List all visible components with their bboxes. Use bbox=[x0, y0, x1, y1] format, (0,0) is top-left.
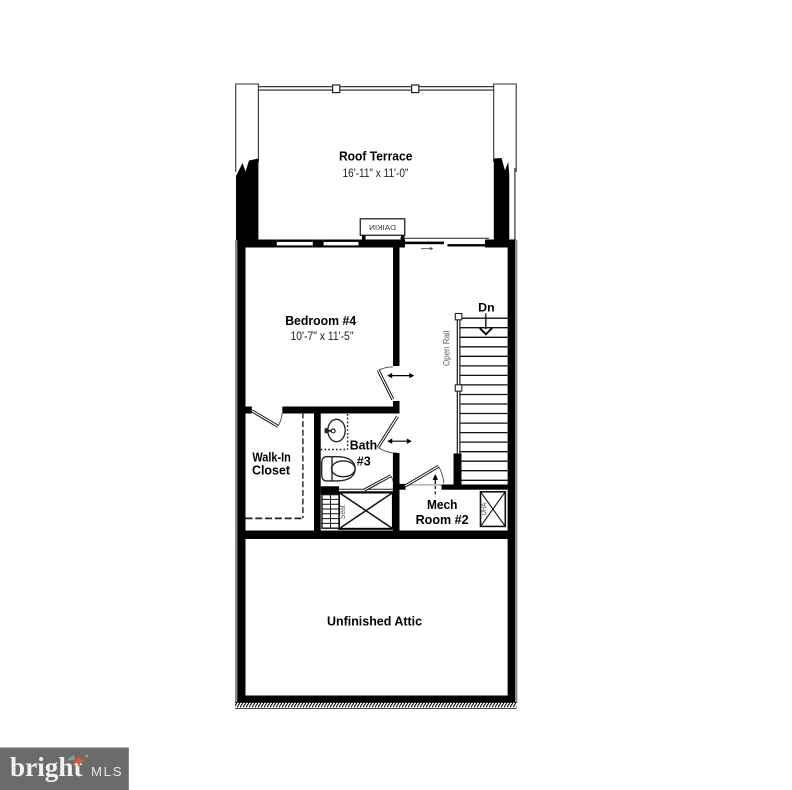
svg-text:Seat: Seat bbox=[338, 505, 347, 520]
svg-text:Roof Terrace: Roof Terrace bbox=[339, 148, 413, 163]
svg-text:Dn: Dn bbox=[478, 300, 495, 314]
svg-text:Bedroom #4: Bedroom #4 bbox=[285, 313, 357, 328]
svg-text:16'-11" x 11'-0": 16'-11" x 11'-0" bbox=[343, 166, 409, 180]
svg-text:UHA: UHA bbox=[479, 503, 488, 516]
svg-text:Room #2: Room #2 bbox=[416, 512, 469, 527]
svg-text:Closet: Closet bbox=[252, 463, 291, 478]
svg-text:DAIKIN: DAIKIN bbox=[369, 225, 396, 232]
svg-text:Mech: Mech bbox=[427, 497, 458, 512]
svg-text:#3: #3 bbox=[357, 454, 371, 469]
svg-text:Bath: Bath bbox=[350, 437, 378, 452]
svg-text:Unfinished Attic: Unfinished Attic bbox=[327, 613, 422, 628]
svg-text:Open Rail: Open Rail bbox=[442, 331, 452, 367]
svg-text:MLS: MLS bbox=[91, 764, 123, 779]
svg-text:10'-7" x 11'-5": 10'-7" x 11'-5" bbox=[291, 329, 354, 343]
